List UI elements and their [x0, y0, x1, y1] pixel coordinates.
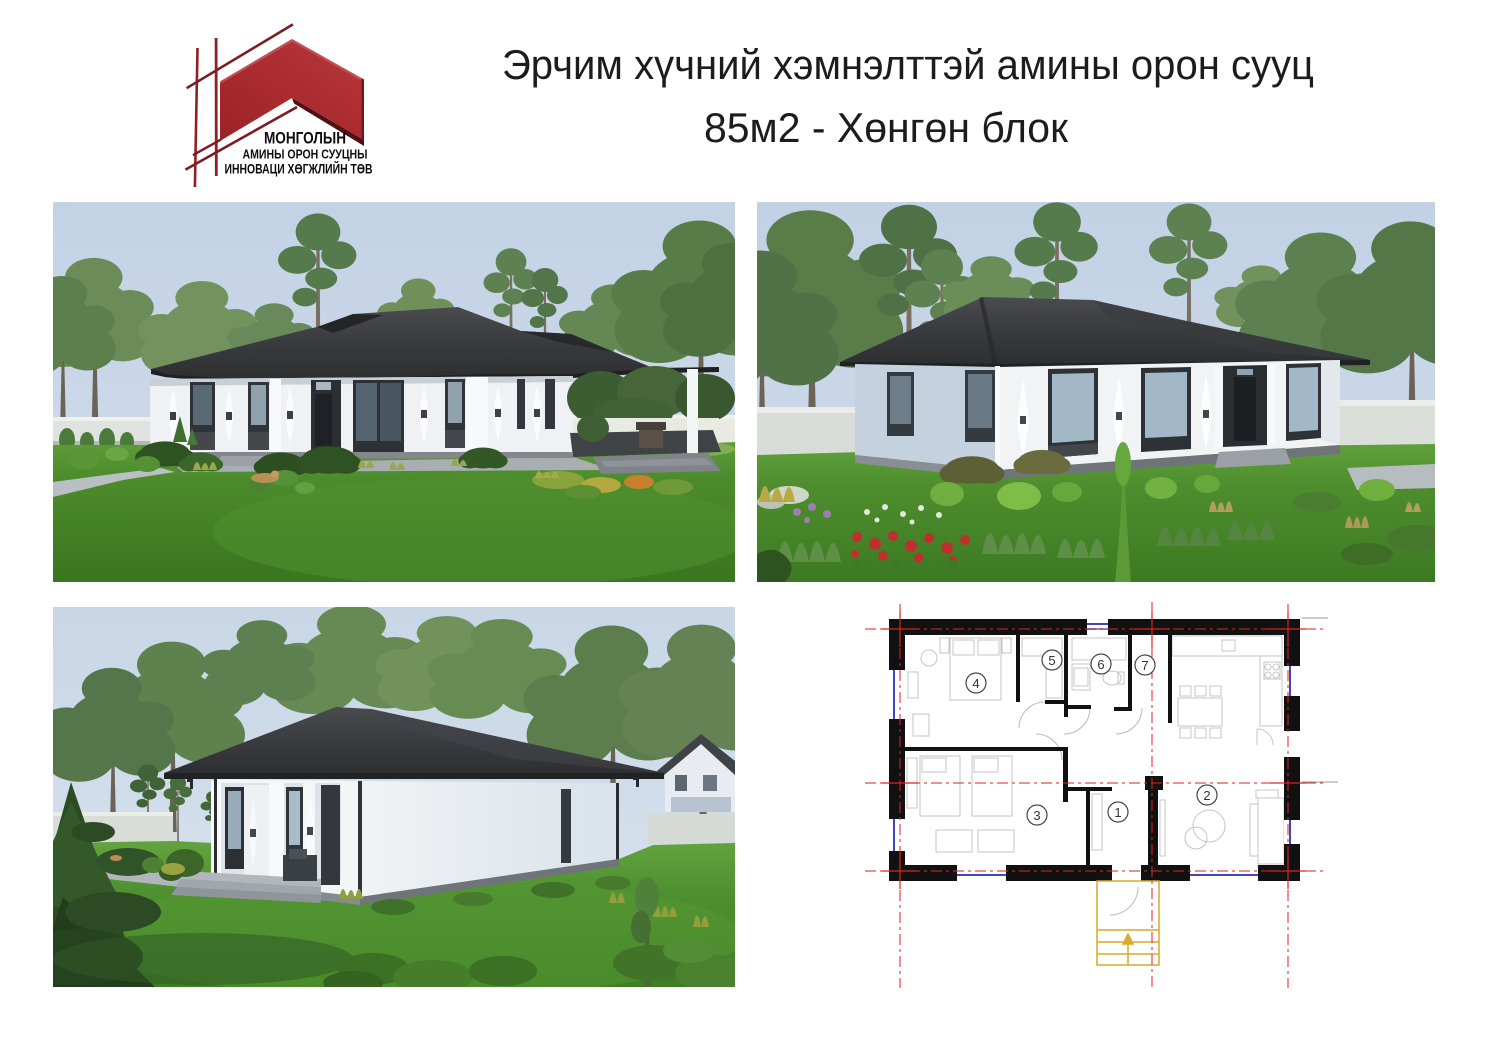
svg-text:4: 4 [972, 676, 979, 691]
svg-text:5: 5 [1048, 653, 1055, 668]
svg-text:85м2 - Хөнгөн блок: 85м2 - Хөнгөн блок [704, 104, 1069, 151]
svg-text:2: 2 [1203, 788, 1210, 803]
svg-text:Эрчим хүчний хэмнэлттэй амины: Эрчим хүчний хэмнэлттэй амины орон сууц [502, 41, 1314, 88]
svg-text:6: 6 [1097, 657, 1104, 672]
svg-text:3: 3 [1033, 808, 1040, 823]
svg-text:7: 7 [1141, 658, 1148, 673]
svg-text:1: 1 [1114, 805, 1121, 820]
